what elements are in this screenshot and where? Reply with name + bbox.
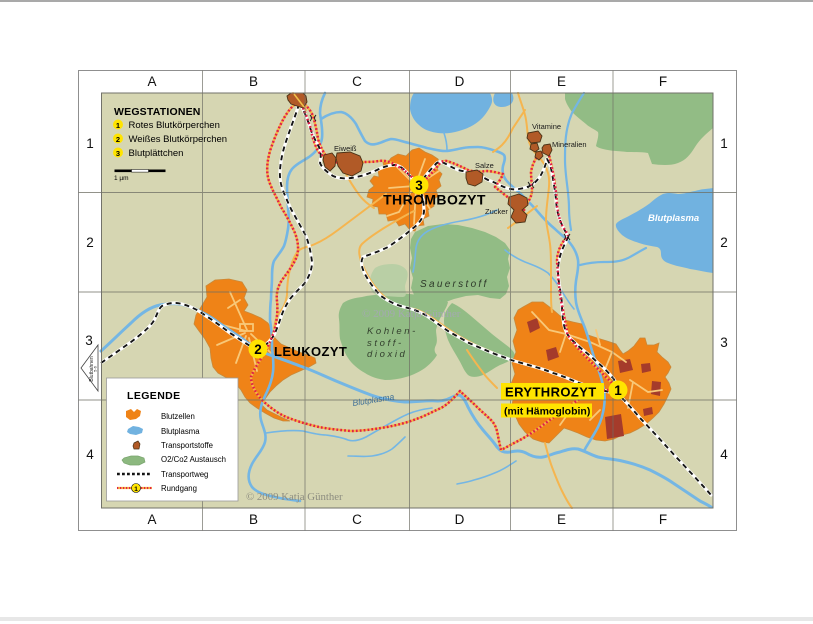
svg-text:4: 4	[720, 447, 728, 462]
svg-text:A: A	[147, 512, 156, 527]
svg-text:D: D	[455, 74, 465, 89]
svg-text:C: C	[352, 512, 362, 527]
svg-text:Transportweg: Transportweg	[161, 470, 208, 479]
svg-text:stoff-: stoff-	[367, 338, 404, 349]
svg-text:Sauerstoff: Sauerstoff	[420, 279, 489, 290]
svg-text:1: 1	[614, 383, 622, 398]
svg-text:B: B	[249, 74, 258, 89]
svg-text:3: 3	[415, 178, 423, 193]
svg-text:Eiweiß: Eiweiß	[334, 144, 357, 153]
svg-text:LEUKOZYT: LEUKOZYT	[274, 344, 347, 359]
svg-text:E: E	[557, 512, 566, 527]
svg-text:3: 3	[116, 149, 120, 158]
svg-text:F: F	[659, 512, 667, 527]
svg-text:Vitamine: Vitamine	[532, 122, 561, 131]
svg-text:Mineralien: Mineralien	[552, 140, 587, 149]
svg-text:D: D	[455, 512, 465, 527]
svg-text:1: 1	[86, 136, 94, 151]
svg-text:© 2009 Katja Günther: © 2009 Katja Günther	[362, 308, 461, 320]
svg-text:2: 2	[116, 135, 120, 144]
svg-text:Salze: Salze	[475, 161, 494, 170]
svg-text:2: 2	[720, 235, 728, 250]
svg-text:Rotes Blutkörperchen: Rotes Blutkörperchen	[129, 120, 220, 131]
svg-text:5-6: 5-6	[93, 365, 98, 372]
svg-text:1: 1	[116, 121, 120, 130]
svg-text:4: 4	[86, 447, 94, 462]
svg-text:Blutplasma: Blutplasma	[648, 213, 699, 224]
svg-text:LEGENDE: LEGENDE	[127, 390, 181, 402]
svg-text:A: A	[147, 74, 156, 89]
svg-text:Transportstoffe: Transportstoffe	[161, 441, 213, 450]
svg-text:Kohlen-: Kohlen-	[367, 326, 418, 337]
svg-text:(mit Hämoglobin): (mit Hämoglobin)	[504, 406, 590, 418]
svg-text:© 2009 Katja Günther: © 2009 Katja Günther	[246, 491, 343, 503]
svg-text:3: 3	[720, 335, 728, 350]
svg-text:B: B	[249, 512, 258, 527]
svg-text:ERYTHROZYT: ERYTHROZYT	[505, 385, 597, 400]
svg-text:Rundgang: Rundgang	[161, 484, 197, 493]
svg-text:1 µm: 1 µm	[114, 175, 129, 182]
svg-text:1: 1	[720, 136, 728, 151]
svg-text:dioxid: dioxid	[367, 349, 407, 360]
svg-text:2: 2	[254, 342, 262, 357]
svg-text:Blutzellen: Blutzellen	[161, 412, 195, 421]
svg-text:2: 2	[86, 235, 94, 250]
svg-text:3: 3	[85, 333, 93, 348]
svg-text:WEGSTATIONEN: WEGSTATIONEN	[114, 106, 201, 118]
svg-text:Zucker: Zucker	[485, 207, 508, 216]
svg-text:Weißes Blutkörperchen: Weißes Blutkörperchen	[129, 134, 228, 145]
svg-text:Blutplättchen: Blutplättchen	[129, 148, 184, 159]
svg-text:1: 1	[134, 486, 138, 493]
svg-text:E: E	[557, 74, 566, 89]
svg-text:C: C	[352, 74, 362, 89]
svg-text:F: F	[659, 74, 667, 89]
svg-text:Blutplasma: Blutplasma	[161, 427, 200, 436]
svg-text:THROMBOZYT: THROMBOZYT	[383, 192, 486, 208]
svg-text:O2/Co2 Austausch: O2/Co2 Austausch	[161, 455, 226, 464]
